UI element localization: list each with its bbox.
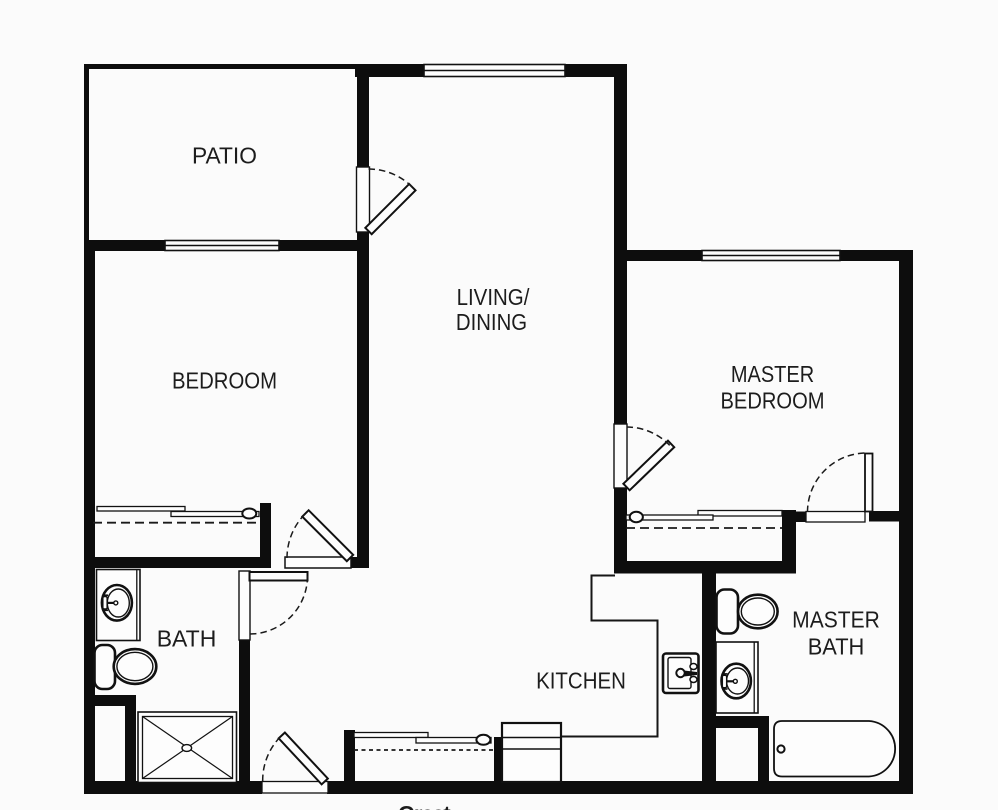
svg-text:DINING: DINING: [456, 309, 527, 335]
svg-text:BATH: BATH: [808, 634, 865, 660]
svg-text:BEDROOM: BEDROOM: [172, 367, 277, 393]
svg-text:KITCHEN: KITCHEN: [536, 667, 626, 693]
svg-text:PATIO: PATIO: [192, 142, 257, 168]
svg-text:MASTER: MASTER: [731, 361, 814, 388]
svg-text:LIVING/: LIVING/: [457, 284, 531, 310]
svg-text:BEDROOM: BEDROOM: [721, 387, 825, 414]
svg-text:MASTER: MASTER: [792, 607, 880, 633]
svg-text:BATH: BATH: [157, 626, 217, 652]
svg-text:Great: Great: [398, 802, 451, 810]
